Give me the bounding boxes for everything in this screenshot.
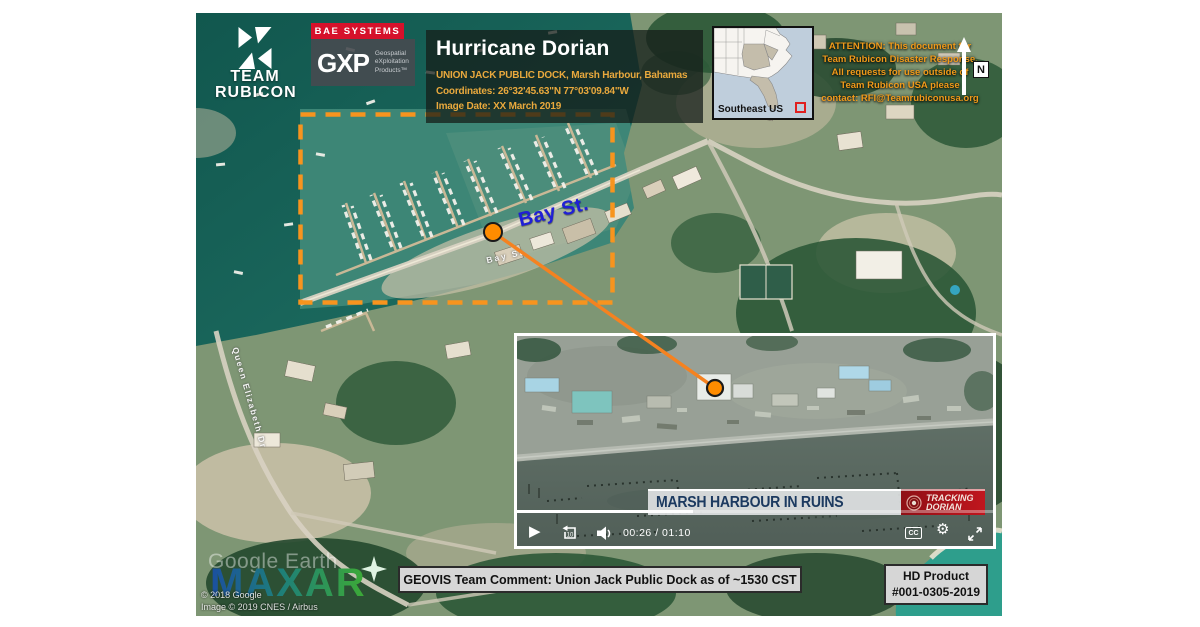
title-coordinates: Coordinates: 26°32'45.63"N 77°03'09.84"W	[436, 84, 693, 100]
settings-gear-icon[interactable]: ⚙	[936, 520, 949, 538]
team-rubicon-mark-icon	[232, 27, 278, 69]
volume-button[interactable]	[597, 526, 615, 541]
video-progress-fill	[517, 510, 693, 513]
video-progress-bar[interactable]	[517, 510, 993, 513]
copyright-cnes-airbus: Image © 2019 CNES / Airbus	[201, 602, 318, 612]
video-inset[interactable]: MARSH HARBOUR IN RUINS TRACKING DORIAN ▶	[514, 333, 996, 549]
fullscreen-button[interactable]	[967, 526, 983, 542]
team-rubicon-logo: TEAM RUBICON	[215, 27, 295, 102]
title-block: Hurricane Dorian UNION JACK PUBLIC DOCK,…	[426, 30, 703, 123]
inset-map-label: Southeast US	[718, 104, 783, 115]
copyright-google: © 2018 Google	[201, 590, 262, 600]
svg-text:10: 10	[567, 533, 574, 539]
hd-product-box: HD Product #001-0305-2019	[884, 564, 988, 605]
bae-systems-banner: BAE SYSTEMS	[311, 23, 404, 39]
captions-button[interactable]: CC	[905, 527, 922, 539]
video-time: 00:26 / 01:10	[623, 527, 691, 539]
southeast-us-map-art	[714, 28, 808, 114]
product-page: Bay St. Bay St Queen Elizabeth Dr TEAM R…	[0, 0, 1200, 627]
hd-product-line2: #001-0305-2019	[892, 585, 980, 601]
satellite-image: Bay St. Bay St Queen Elizabeth Dr TEAM R…	[196, 13, 1002, 616]
page-title: Hurricane Dorian	[436, 37, 693, 61]
team-rubicon-word2: RUBICON	[215, 85, 295, 101]
gxp-logo: GXP Geospatial eXploitation Products™	[311, 39, 415, 86]
north-label: N	[973, 61, 989, 78]
geovis-comment-box: GEOVIS Team Comment: Union Jack Public D…	[398, 566, 802, 593]
gxp-wordmark: GXP	[317, 50, 369, 76]
play-button[interactable]: ▶	[529, 522, 541, 540]
title-image-date: Image Date: XX March 2019	[436, 99, 693, 115]
hd-product-line1: HD Product	[903, 569, 969, 585]
north-arrow-icon	[954, 37, 974, 99]
title-location: UNION JACK PUBLIC DOCK, Marsh Harbour, B…	[436, 68, 693, 84]
replay-10-button[interactable]: 10	[561, 525, 579, 542]
team-rubicon-word1: TEAM	[215, 69, 295, 85]
gxp-tagline: Geospatial eXploitation Products™	[375, 50, 409, 74]
